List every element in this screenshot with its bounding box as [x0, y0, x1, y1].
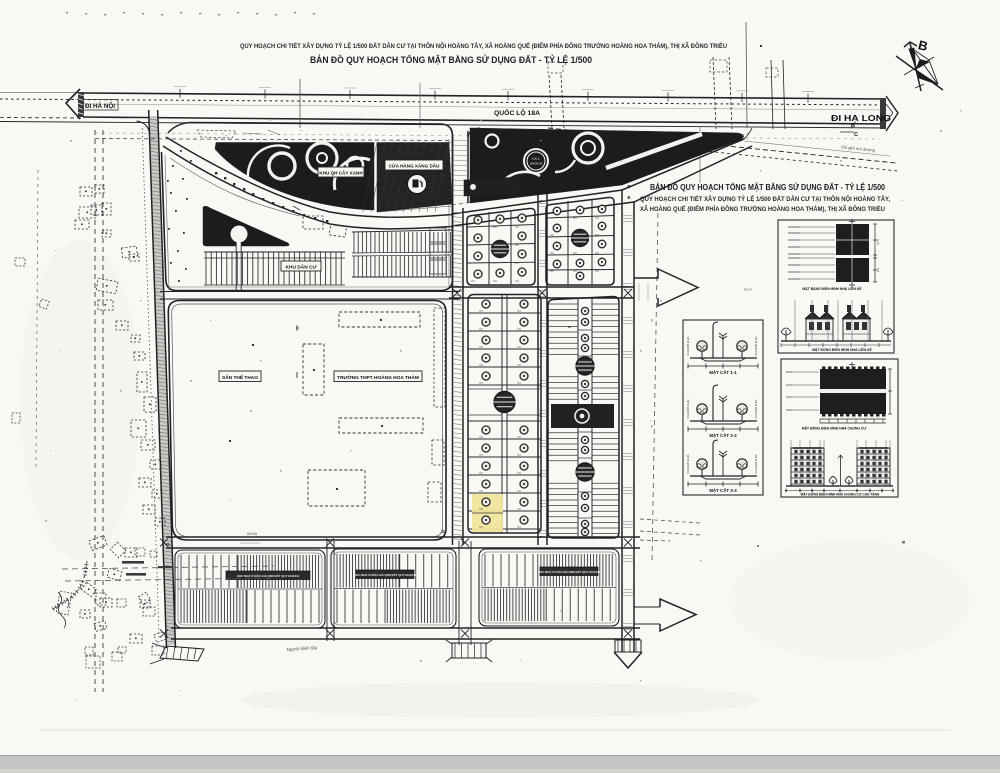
svg-text:CHỈ GIỚI Đ.Đỏ: CHỈ GIỚI Đ.Đỏ — [753, 399, 758, 418]
svg-text:QUY HOẠCH CHI TIẾT XÂY DỰNG TỶ: QUY HOẠCH CHI TIẾT XÂY DỰNG TỶ LỆ 1/500 … — [240, 42, 727, 50]
svg-text:CHỈ GIỚI Đ.Đỏ: CHỈ GIỚI Đ.Đỏ — [753, 454, 758, 473]
svg-text:KHU QH CÂY XANH: KHU QH CÂY XANH — [319, 170, 363, 176]
svg-text:CX 1: CX 1 — [532, 157, 540, 161]
svg-text:BẢN ĐỒ QUY HOẠCH TỔNG MẶT BẰNG: BẢN ĐỒ QUY HOẠCH TỔNG MẶT BẰNG SỬ DỤNG Đ… — [650, 181, 885, 192]
svg-text:ĐI HÀ NỘI: ĐI HÀ NỘI — [85, 102, 115, 110]
svg-text:KHU NHÀ Ở ĐẤU GIÁ QSD ĐẤT QUY: KHU NHÀ Ở ĐẤU GIÁ QSD ĐẤT QUY HOẠCH — [237, 573, 299, 578]
svg-text:ĐI HẠ LONG: ĐI HẠ LONG — [831, 113, 891, 123]
svg-text:KHU NHÀ Ở ĐẤU GIÁ QSD ĐẤT QUY: KHU NHÀ Ở ĐẤU GIÁ QSD ĐẤT QUY HOẠCH — [354, 572, 416, 577]
svg-text:MẶT CẮT 2-2: MẶT CẮT 2-2 — [709, 433, 737, 438]
svg-text:E: E — [627, 195, 630, 200]
svg-text:CHỈ GIỚI Đ.Đỏ: CHỈ GIỚI Đ.Đỏ — [685, 336, 690, 355]
svg-text:MẶT BẰNG ĐIỂN HÌNH NHÀ LIỀN KỀ: MẶT BẰNG ĐIỂN HÌNH NHÀ LIỀN KỀ — [802, 286, 862, 291]
svg-text:P2 P: P2 P — [744, 288, 752, 292]
svg-text:CHỈ GIỚI Đ.Đỏ: CHỈ GIỚI Đ.Đỏ — [685, 454, 690, 473]
svg-text:KHU DÂN CƯ: KHU DÂN CƯ — [286, 264, 317, 271]
svg-text:MẶT ĐỨNG ĐIỂN HÌNH NHÀ CHUNG C: MẶT ĐỨNG ĐIỂN HÌNH NHÀ CHUNG CƯ CAO TẦNG — [801, 492, 880, 497]
svg-text:53.54: 53.54 — [247, 531, 258, 536]
svg-text:C: C — [854, 132, 858, 138]
svg-text:SÂN THỂ THAO: SÂN THỂ THAO — [222, 374, 258, 381]
svg-text:BẢN ĐỒ QUY HOẠCH TỔNG MẶT BẰNG: BẢN ĐỒ QUY HOẠCH TỔNG MẶT BẰNG SỬ DỤNG Đ… — [310, 54, 592, 65]
svg-text:G: G — [166, 542, 170, 547]
svg-text:P: P — [651, 425, 654, 429]
svg-text:9.0: 9.0 — [876, 268, 880, 273]
svg-text:CỬA HÀNG XĂNG DẦU: CỬA HÀNG XĂNG DẦU — [389, 163, 441, 169]
svg-text:16428 M2: 16428 M2 — [529, 162, 543, 166]
svg-text:MẶT CẮT 1-1: MẶT CẮT 1-1 — [709, 370, 737, 375]
svg-text:CHỈ GIỚI Đ.Đỏ: CHỈ GIỚI Đ.Đỏ — [685, 399, 690, 418]
svg-text:MẶT CẮT 3-3: MẶT CẮT 3-3 — [709, 488, 737, 493]
svg-text:G: G — [441, 529, 445, 534]
svg-text:MẶT BẰNG ĐIỂN HÌNH NHÀ CHUNG C: MẶT BẰNG ĐIỂN HÌNH NHÀ CHUNG CƯ — [802, 426, 867, 431]
svg-text:P: P — [651, 319, 654, 323]
svg-text:MẶT ĐỨNG ĐIỂN HÌNH NHÀ LIỀN KỀ: MẶT ĐỨNG ĐIỂN HÌNH NHÀ LIỀN KỀ — [812, 347, 872, 352]
svg-text:CHỈ GIỚI Đ.Đỏ: CHỈ GIỚI Đ.Đỏ — [753, 336, 758, 355]
svg-text:KHU NHÀ Ở ĐẤU GIÁ QSD ĐẤT QUY: KHU NHÀ Ở ĐẤU GIÁ QSD ĐẤT QUY HOẠCH — [538, 569, 600, 574]
svg-text:11.5: 11.5 — [876, 239, 880, 245]
